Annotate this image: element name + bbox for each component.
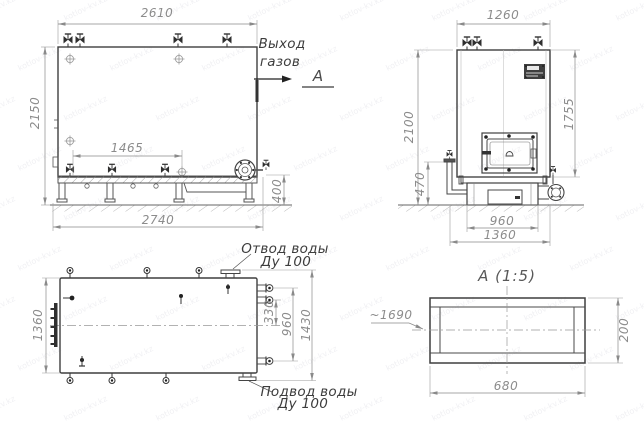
roof-valve [196, 268, 202, 279]
dim-front-base-width: 1360 [484, 228, 517, 242]
safety-valve [174, 34, 183, 47]
base-strip [58, 176, 257, 183]
water-outlet-flange [221, 270, 240, 278]
hinge-strip [51, 303, 58, 347]
safety-valve [76, 34, 85, 47]
nameplate [524, 64, 545, 79]
front-view [398, 20, 584, 246]
return-flange [538, 175, 564, 201]
peephole [506, 152, 513, 157]
door-handle [482, 151, 491, 155]
safety-valve [223, 34, 232, 47]
side-stub [257, 284, 273, 293]
hearth-box [467, 183, 538, 205]
drain-valve [161, 164, 169, 176]
safety-valve [64, 34, 73, 47]
dim-plan-overall: 1430 [299, 309, 313, 342]
vent-symbol [174, 54, 185, 65]
roof-valve [109, 373, 115, 384]
drawing-linework [0, 0, 644, 430]
safety-valve [534, 37, 543, 50]
hearth-flange [461, 177, 546, 183]
roof-valve [67, 373, 73, 384]
dim-plan-stub-span: 960 [280, 312, 294, 336]
furnace-door [482, 133, 537, 173]
boiler-body-side [58, 47, 257, 177]
dim-plan-width: 1360 [31, 309, 45, 342]
gas-outlet-label-line1: Выход [258, 36, 305, 52]
ash-trough [184, 183, 246, 192]
safety-valve [473, 37, 482, 50]
water-inlet-label-line2: Ду 100 [278, 396, 328, 412]
vent-symbol [65, 54, 76, 65]
dimension-lines [430, 298, 623, 397]
safety-valve [463, 37, 472, 50]
dim-front-pipe-height: 470 [413, 172, 427, 196]
dim-side-base-length: 2740 [142, 213, 175, 227]
roof-valve [163, 373, 169, 384]
drawing-sheet: kotlov-kv.kzkotlov-kv.kzkotlov-kv.kzkotl… [0, 0, 644, 430]
section-mark-letter: А [313, 67, 323, 85]
dim-section-length-ref: ~1690 [369, 308, 412, 322]
vent-symbol [65, 136, 76, 147]
dim-front-width: 1260 [487, 8, 520, 22]
support-legs [57, 183, 254, 202]
gas-outlet-flange [256, 80, 259, 102]
dim-side-base-height: 400 [270, 179, 284, 203]
dim-front-hearth-width: 960 [490, 214, 514, 228]
gas-outlet-label-line2: газов [260, 54, 300, 70]
side-bracket [53, 157, 58, 167]
leader-length-ref [409, 323, 423, 329]
dim-front-body-height: 1755 [562, 98, 576, 131]
dim-plan-stub-offset: 330 [262, 300, 276, 324]
dim-section-height: 200 [617, 318, 631, 342]
drain-valve [108, 164, 116, 176]
dim-side-width: 2610 [141, 6, 174, 20]
dim-side-height: 2150 [28, 97, 42, 130]
water-inlet-flange [239, 373, 256, 381]
dim-section-width: 680 [494, 379, 518, 393]
interior-fittings [63, 284, 230, 366]
burner-flange [235, 160, 269, 180]
dim-front-height: 2100 [402, 111, 416, 144]
roof-valve [144, 268, 150, 279]
section-title: А (1:5) [478, 267, 536, 285]
dim-side-valve-span: 1465 [111, 141, 144, 155]
roof-valve [67, 268, 73, 279]
side-stub [257, 357, 273, 366]
water-outlet-label-line2: Ду 100 [261, 254, 311, 270]
